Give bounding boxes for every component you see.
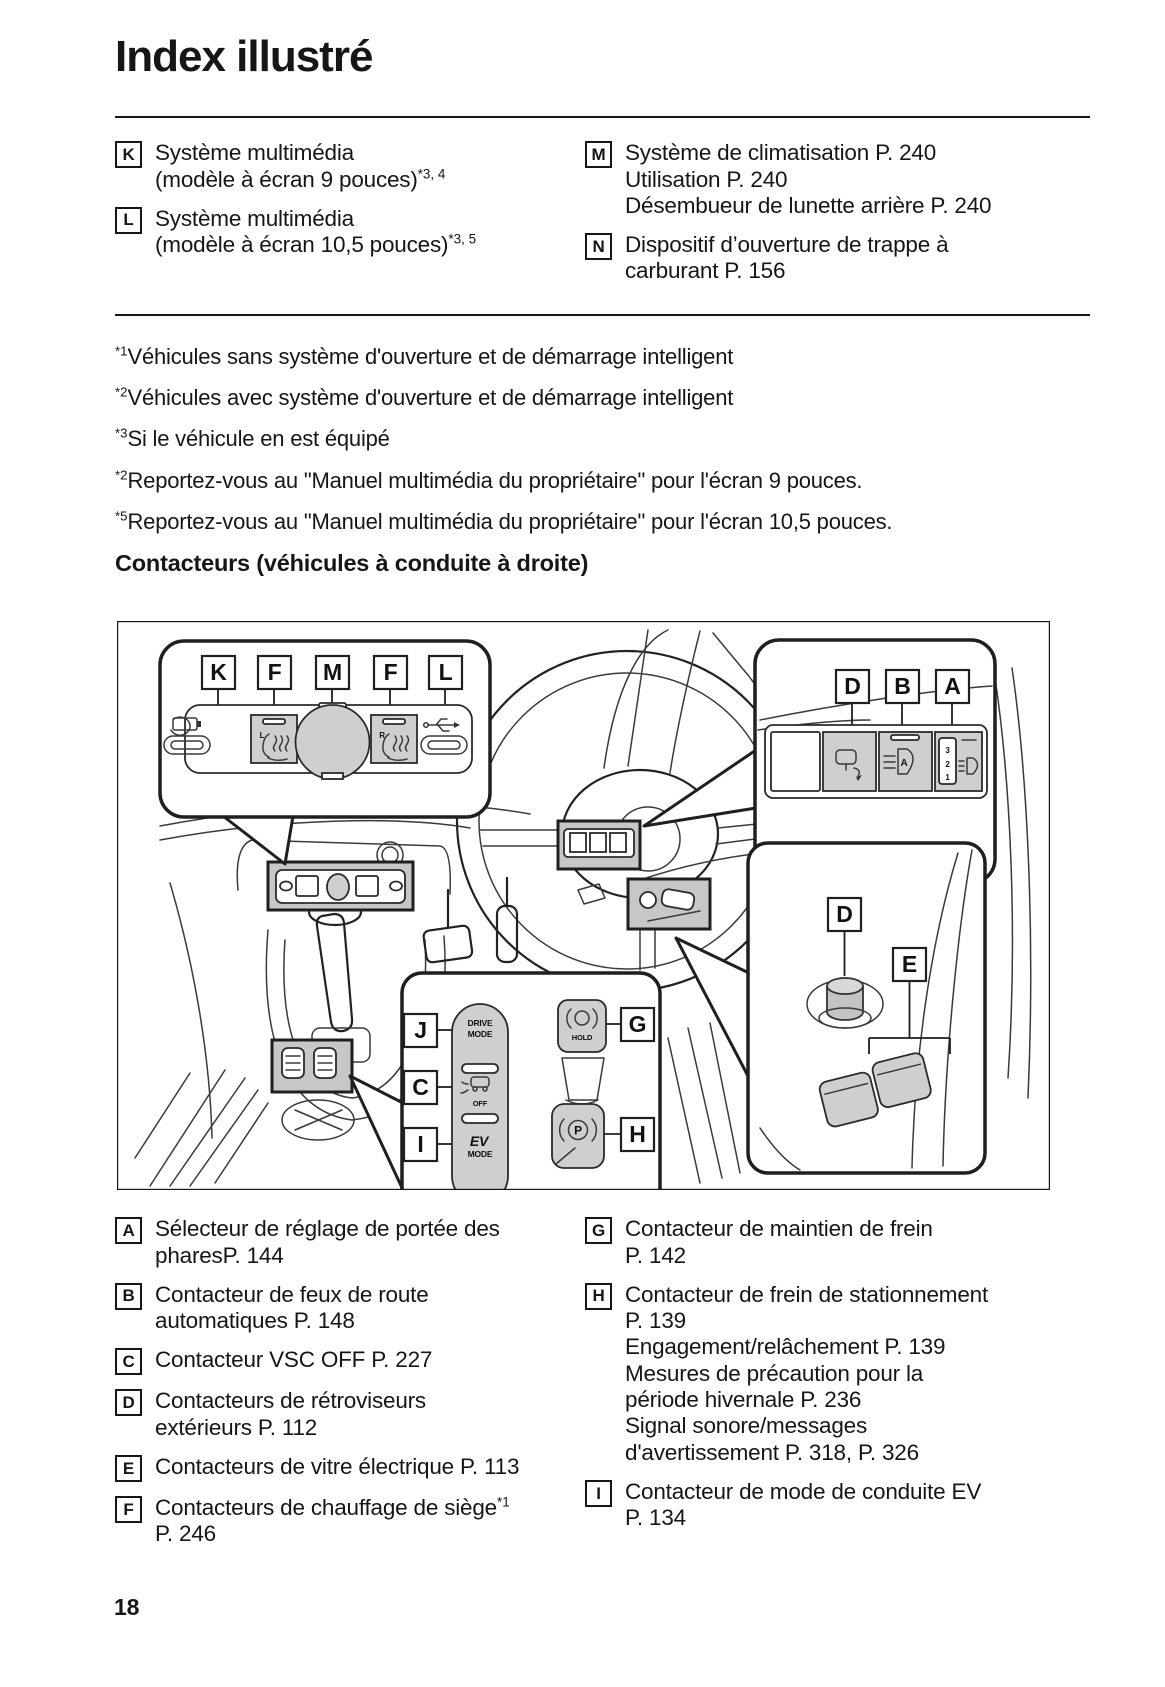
footnote-text: Véhicules avec système d'ouverture et de… — [127, 385, 733, 410]
list-item-N: N Dispositif d’ouverture de trappe à car… — [585, 232, 1090, 285]
top-index-right-column: M Système de climatisation P. 240 Utilis… — [585, 140, 1090, 298]
item-text-main: Système multimédia (modèle à écran 10,5 … — [155, 206, 448, 257]
item-text: Système de climatisation P. 240 Utilisat… — [625, 140, 991, 219]
item-letter-box: G — [585, 1217, 612, 1244]
label-letter: D — [836, 901, 852, 927]
footnote: *3Si le véhicule en est équipé — [115, 426, 1090, 451]
label-letter: F — [268, 659, 282, 685]
label-letter: C — [412, 1074, 428, 1100]
footnote-text: Reportez-vous au "Manuel multimédia du p… — [127, 468, 862, 493]
label-letter: M — [323, 659, 342, 685]
item-letter-box: N — [585, 233, 612, 260]
seat-left-letter: L — [260, 731, 265, 740]
callout-top-left: K F M F — [160, 641, 490, 864]
item-letter-box: K — [115, 141, 142, 168]
page-number: 18 — [114, 1594, 139, 1621]
label-letter: L — [439, 659, 453, 685]
auto-letter: A — [900, 758, 907, 769]
console-upper-panel — [268, 862, 413, 910]
footnote-text: Véhicules sans système d'ouverture et de… — [127, 344, 733, 369]
parking-brake-button: P — [552, 1104, 604, 1168]
footnote-marker: *3 — [115, 426, 127, 441]
footnotes: *1Véhicules sans système d'ouverture et … — [115, 344, 1090, 534]
mirror-control-icon — [823, 732, 876, 791]
item-text: Sélecteur de réglage de portée des phare… — [155, 1216, 500, 1269]
drive-mode-button-pill: DRIVE MODE OFF EV MODE — [452, 1004, 508, 1190]
top-index-list: K Système multimédia (modèle à écran 9 p… — [115, 140, 1090, 298]
callout-pointer — [644, 750, 756, 826]
legend-list: A Sélecteur de réglage de portée des pha… — [115, 1216, 1090, 1561]
item-text-superscript: *1 — [497, 1495, 510, 1510]
label-letter: D — [844, 673, 860, 699]
item-letter-box: A — [115, 1217, 142, 1244]
item-text-superscript: *3, 4 — [418, 166, 446, 181]
legend-right-column: G Contacteur de maintien de frein P. 142… — [585, 1216, 1090, 1561]
drive-mode-text: MODE — [468, 1029, 493, 1039]
label-letter: G — [629, 1011, 647, 1037]
label-letter: I — [417, 1131, 423, 1157]
footnote-marker: *2 — [115, 385, 127, 400]
auto-high-beam-icon: A — [879, 732, 932, 791]
label-letter: B — [894, 673, 910, 699]
floor-lines — [135, 883, 268, 1186]
footnote-marker: *5 — [115, 509, 127, 524]
item-text: Système multimédia (modèle à écran 9 pou… — [155, 140, 445, 193]
page-content: Index illustré K Système multimédia (mod… — [0, 34, 1165, 1561]
legend-left-column: A Sélecteur de réglage de portée des pha… — [115, 1216, 585, 1561]
hold-text: HOLD — [572, 1033, 593, 1042]
climate-knob — [296, 703, 370, 779]
item-letter-box: F — [115, 1496, 142, 1523]
legend-item-B: B Contacteur de feux de route automatiqu… — [115, 1282, 585, 1335]
label-letter: E — [902, 951, 917, 977]
top-index-left-column: K Système multimédia (modèle à écran 9 p… — [115, 140, 585, 298]
item-text: Contacteur de feux de route automatiques… — [155, 1282, 429, 1335]
divider-top — [115, 116, 1090, 118]
item-text-superscript: *3, 5 — [448, 232, 476, 247]
vsc-off-text: OFF — [473, 1099, 488, 1108]
seat-heater-right-icon: R — [371, 715, 417, 763]
item-letter-box: B — [115, 1283, 142, 1310]
seat-heater-left-icon: L — [251, 715, 297, 763]
footnote-marker: *1 — [115, 343, 127, 358]
footnote: *2Véhicules avec système d'ouverture et … — [115, 385, 1090, 410]
item-letter-box: H — [585, 1283, 612, 1310]
item-letter-box: L — [115, 207, 142, 234]
label-letter: K — [210, 659, 227, 685]
item-text-main: Système multimédia (modèle à écran 9 pou… — [155, 140, 418, 191]
callout-pointer — [676, 938, 749, 1078]
label-letter: F — [384, 659, 398, 685]
callout-pointer — [350, 1076, 403, 1190]
item-letter-box: I — [585, 1480, 612, 1507]
item-letter-box: E — [115, 1455, 142, 1482]
drive-mode-text: DRIVE — [468, 1018, 494, 1028]
legend-item-E: E Contacteurs de vitre électrique P. 113 — [115, 1454, 585, 1482]
parking-letter: P — [574, 1124, 582, 1138]
item-text: Contacteur VSC OFF P. 227 — [155, 1347, 432, 1373]
page-title: Index illustré — [115, 34, 1090, 80]
item-text: Contacteurs de rétroviseurs extérieurs P… — [155, 1388, 426, 1441]
footnote-text: Si le véhicule en est équipé — [127, 426, 389, 451]
divider-middle — [115, 314, 1090, 316]
footnote: *1Véhicules sans système d'ouverture et … — [115, 344, 1090, 369]
callout-bottom-right: D E — [676, 843, 985, 1173]
list-item-M: M Système de climatisation P. 240 Utilis… — [585, 140, 1090, 219]
legend-item-A: A Sélecteur de réglage de portée des pha… — [115, 1216, 585, 1269]
item-text: Contacteur de maintien de frein P. 142 — [625, 1216, 933, 1269]
item-text: Contacteurs de vitre électrique P. 113 — [155, 1454, 519, 1480]
callout-bottom-center: DRIVE MODE OFF EV MODE — [350, 973, 660, 1190]
label-letter: A — [944, 673, 960, 699]
legend-item-C: C Contacteur VSC OFF P. 227 — [115, 1347, 585, 1375]
footnote-marker: *2 — [115, 467, 127, 482]
item-text: Système multimédia (modèle à écran 10,5 … — [155, 206, 476, 259]
section-heading: Contacteurs (véhicules à conduite à droi… — [115, 550, 1090, 577]
manual-page: { "page": {"title": "Index illustré", "n… — [0, 34, 1165, 1687]
item-text: Contacteur de frein de stationnement P. … — [625, 1282, 988, 1466]
console-lower-panel — [272, 1040, 352, 1092]
item-text: Dispositif d’ouverture de trappe à carbu… — [625, 232, 948, 285]
legend-item-G: G Contacteur de maintien de frein P. 142 — [585, 1216, 1090, 1269]
ev-mode-text: MODE — [468, 1149, 493, 1159]
callout-pointer — [223, 816, 293, 864]
door-switch-panel — [628, 879, 710, 929]
footnote-text: Reportez-vous au "Manuel multimédia du p… — [127, 509, 892, 534]
label-letter: H — [629, 1121, 645, 1147]
list-item-K: K Système multimédia (modèle à écran 9 p… — [115, 140, 585, 193]
list-item-L: L Système multimédia (modèle à écran 10,… — [115, 206, 585, 259]
item-letter-box: M — [585, 141, 612, 168]
item-text: Contacteurs de chauffage de siège*1 P. 2… — [155, 1495, 510, 1548]
item-letter-box: D — [115, 1389, 142, 1416]
item-text-main: Contacteurs de chauffage de siège — [155, 1495, 497, 1520]
item-text: Contacteur de mode de conduite EV P. 134 — [625, 1479, 981, 1532]
label-letter: J — [414, 1017, 427, 1043]
footnote: *5Reportez-vous au "Manuel multimédia du… — [115, 509, 1090, 534]
headlight-leveling-dial: 3 2 1 — [935, 732, 982, 791]
legend-item-I: I Contacteur de mode de conduite EV P. 1… — [585, 1479, 1090, 1532]
footnote: *2Reportez-vous au "Manuel multimédia du… — [115, 468, 1090, 493]
steering-right-panel — [558, 821, 640, 869]
ev-text: EV — [470, 1133, 490, 1149]
item-letter-box: C — [115, 1348, 142, 1375]
pedals — [423, 878, 517, 963]
brake-hold-button: HOLD — [558, 1000, 606, 1052]
controls-diagram: K F M F — [117, 621, 1050, 1190]
legend-item-F: F Contacteurs de chauffage de siège*1 P.… — [115, 1495, 585, 1548]
item-text-rest: P. 246 — [155, 1521, 216, 1546]
legend-item-H: H Contacteur de frein de stationnement P… — [585, 1282, 1090, 1466]
legend-item-D: D Contacteurs de rétroviseurs extérieurs… — [115, 1388, 585, 1441]
